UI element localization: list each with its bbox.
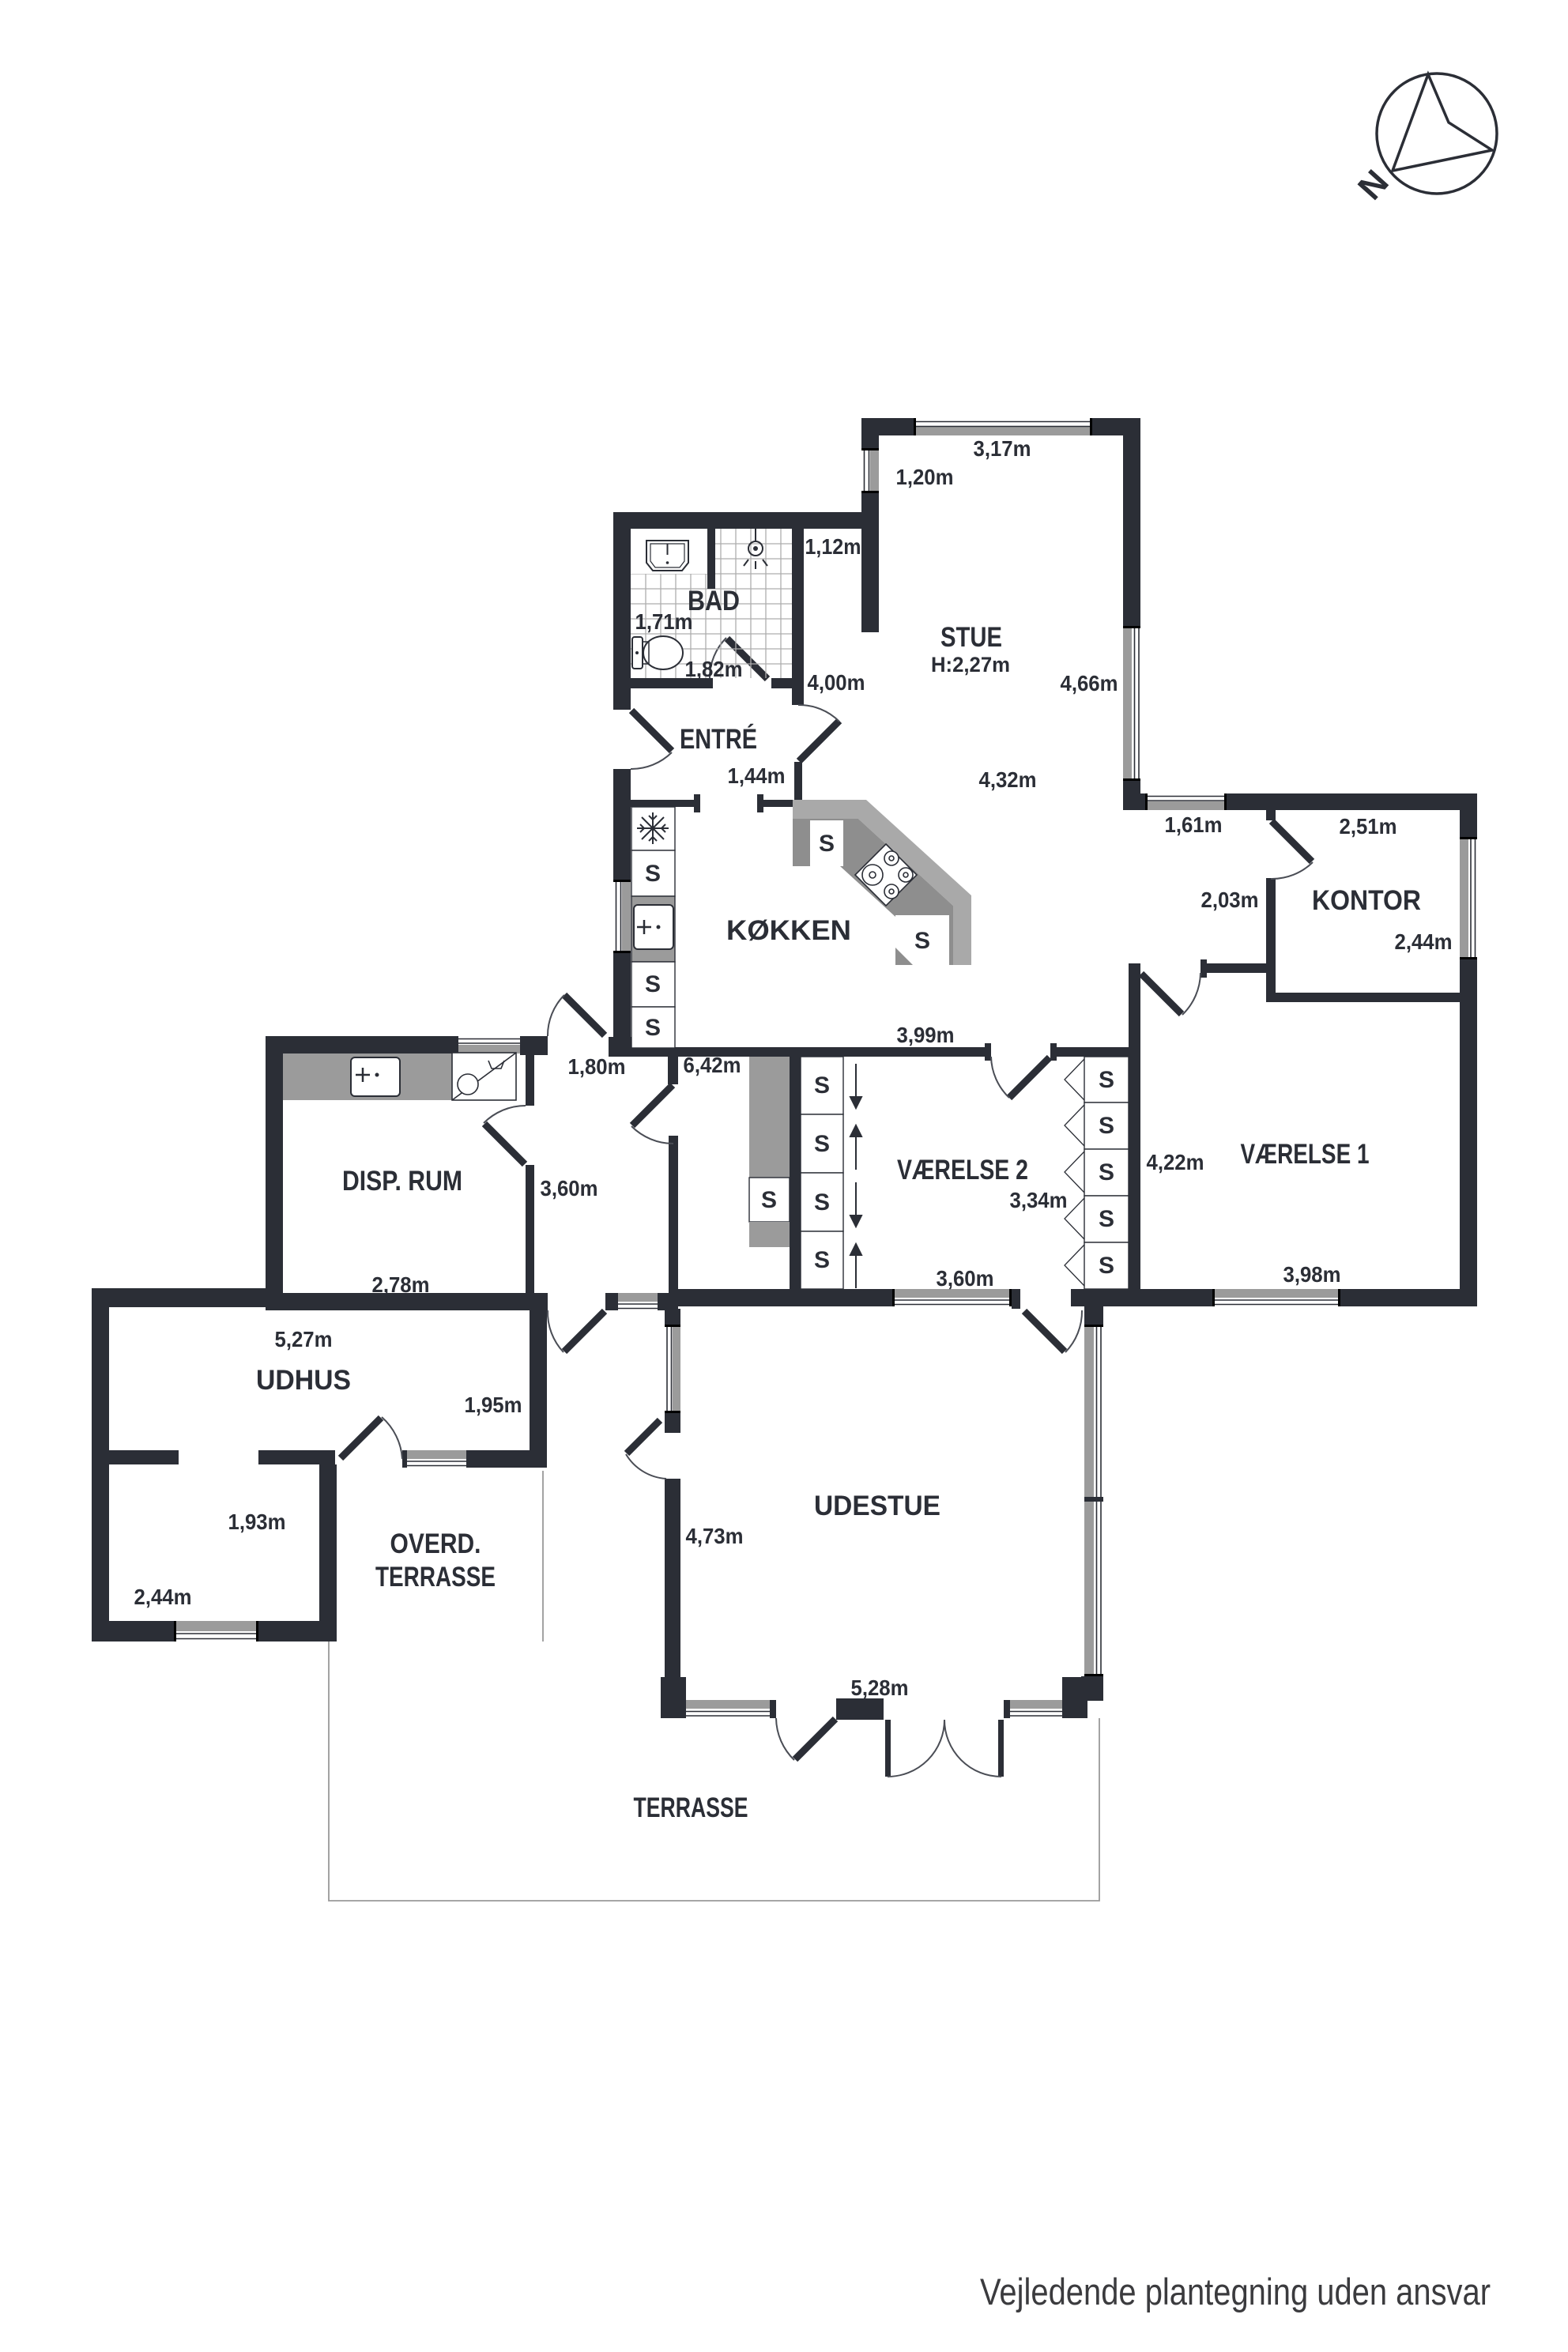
svg-text:3,60m: 3,60m xyxy=(937,1266,994,1291)
svg-text:S: S xyxy=(914,928,930,954)
svg-text:1,44m: 1,44m xyxy=(728,763,786,788)
svg-text:S: S xyxy=(814,1247,830,1273)
svg-text:S: S xyxy=(1099,1253,1114,1279)
svg-text:S: S xyxy=(645,861,661,887)
svg-text:4,00m: 4,00m xyxy=(808,670,865,695)
svg-text:S: S xyxy=(814,1131,830,1157)
svg-text:4,66m: 4,66m xyxy=(1061,671,1118,695)
svg-text:5,27m: 5,27m xyxy=(275,1327,333,1351)
svg-text:3,60m: 3,60m xyxy=(541,1176,598,1200)
svg-text:KØKKEN: KØKKEN xyxy=(726,915,851,946)
svg-text:1,93m: 1,93m xyxy=(228,1510,286,1534)
svg-text:TERRASSE: TERRASSE xyxy=(375,1562,496,1592)
svg-text:DISP. RUM: DISP. RUM xyxy=(342,1166,462,1197)
svg-text:4,22m: 4,22m xyxy=(1147,1150,1204,1174)
svg-text:1,61m: 1,61m xyxy=(1165,812,1223,837)
svg-text:S: S xyxy=(814,1189,830,1216)
svg-text:S: S xyxy=(1099,1159,1114,1185)
svg-text:UDESTUE: UDESTUE xyxy=(814,1491,940,1521)
svg-text:2,44m: 2,44m xyxy=(134,1585,192,1609)
svg-text:OVERD.: OVERD. xyxy=(390,1528,481,1559)
svg-text:S: S xyxy=(1099,1206,1114,1232)
svg-text:3,98m: 3,98m xyxy=(1283,1262,1341,1287)
svg-text:Vejledende plantegning uden an: Vejledende plantegning uden ansvar xyxy=(980,2271,1491,2312)
svg-text:S: S xyxy=(645,971,661,997)
svg-text:4,32m: 4,32m xyxy=(979,767,1037,792)
svg-text:1,20m: 1,20m xyxy=(896,465,954,489)
svg-text:5,28m: 5,28m xyxy=(851,1675,909,1700)
svg-text:3,34m: 3,34m xyxy=(1010,1188,1068,1212)
svg-text:VÆRELSE 2: VÆRELSE 2 xyxy=(897,1155,1028,1185)
svg-text:STUE: STUE xyxy=(940,622,1002,653)
svg-text:BAD: BAD xyxy=(688,586,740,616)
svg-text:1,82m: 1,82m xyxy=(685,657,743,681)
svg-text:2,78m: 2,78m xyxy=(372,1272,430,1297)
svg-text:S: S xyxy=(1099,1113,1114,1139)
svg-text:ENTRÉ: ENTRÉ xyxy=(680,723,757,755)
svg-text:H:2,27m: H:2,27m xyxy=(931,653,1010,677)
svg-text:2,44m: 2,44m xyxy=(1395,929,1453,954)
svg-text:UDHUS: UDHUS xyxy=(256,1365,351,1396)
svg-text:1,12m: 1,12m xyxy=(805,534,861,559)
svg-text:3,99m: 3,99m xyxy=(897,1023,955,1047)
svg-text:VÆRELSE 1: VÆRELSE 1 xyxy=(1241,1139,1370,1170)
svg-text:S: S xyxy=(819,831,835,857)
svg-text:1,80m: 1,80m xyxy=(568,1054,626,1079)
svg-text:S: S xyxy=(645,1015,661,1041)
svg-text:KONTOR: KONTOR xyxy=(1312,885,1421,916)
svg-text:TERRASSE: TERRASSE xyxy=(634,1792,748,1823)
svg-text:S: S xyxy=(761,1187,777,1213)
svg-text:1,95m: 1,95m xyxy=(465,1393,522,1417)
svg-text:S: S xyxy=(814,1072,830,1099)
svg-text:1,71m: 1,71m xyxy=(635,609,693,634)
svg-text:3,17m: 3,17m xyxy=(974,436,1031,461)
svg-text:2,03m: 2,03m xyxy=(1201,888,1259,912)
svg-text:2,51m: 2,51m xyxy=(1340,814,1397,839)
svg-text:6,42m: 6,42m xyxy=(684,1053,741,1077)
svg-text:4,73m: 4,73m xyxy=(686,1524,744,1548)
svg-text:S: S xyxy=(1099,1067,1114,1093)
